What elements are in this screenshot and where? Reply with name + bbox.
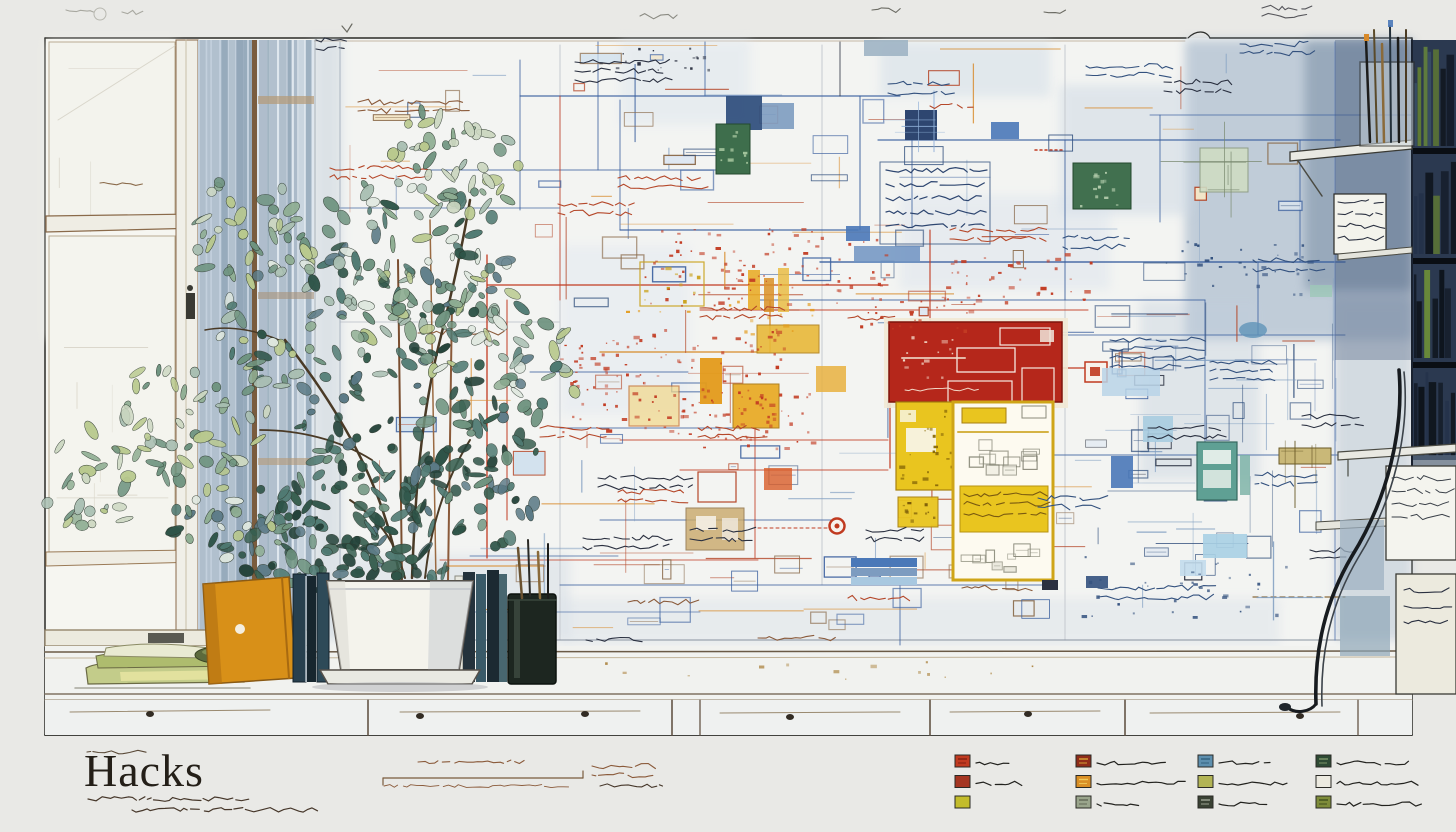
dot-mark	[690, 67, 693, 70]
dot-mark	[772, 243, 775, 246]
art-shape	[235, 624, 245, 634]
dot-mark	[680, 241, 683, 244]
dot-mark	[1240, 249, 1242, 251]
dot-mark	[1257, 285, 1261, 289]
dot-mark	[733, 250, 735, 252]
art-shape	[864, 40, 908, 56]
dot-mark	[943, 305, 945, 307]
dot-mark	[1229, 577, 1231, 579]
stripe	[1426, 372, 1429, 456]
dot-mark	[729, 160, 732, 162]
dot-mark	[910, 326, 913, 329]
dot-mark	[946, 286, 951, 289]
stripe	[1441, 171, 1449, 254]
dot-mark	[717, 234, 722, 237]
legend-swatch	[1076, 796, 1091, 808]
art-shape	[312, 682, 488, 692]
dot-mark	[638, 48, 641, 51]
dot-mark	[1070, 279, 1072, 280]
dot-mark	[998, 272, 1002, 274]
book-spine	[293, 574, 306, 682]
dot-mark	[1089, 581, 1092, 584]
dot-mark	[743, 265, 746, 266]
dot-mark	[602, 353, 605, 356]
dot-mark	[801, 412, 803, 414]
schematic-box	[664, 155, 695, 164]
dot-mark	[1205, 259, 1210, 262]
stripe	[1445, 288, 1451, 358]
dot-mark	[1084, 290, 1091, 294]
dot-mark	[1262, 273, 1268, 276]
dot-mark	[924, 360, 930, 363]
art-shape	[45, 700, 1412, 735]
art-shape	[757, 325, 819, 353]
dot-mark	[595, 363, 601, 366]
dot-mark	[623, 53, 624, 54]
dot-mark	[1198, 574, 1201, 576]
dot-mark	[740, 439, 742, 441]
legend-swatch	[1076, 776, 1091, 788]
dot-mark	[1211, 257, 1214, 260]
dot-mark	[581, 403, 584, 406]
dot-mark	[872, 271, 875, 274]
dot-mark	[906, 511, 909, 514]
dot-mark	[644, 427, 646, 429]
dot-mark	[810, 309, 814, 311]
dot-mark	[991, 276, 995, 280]
dot-mark	[1184, 273, 1187, 274]
dot-mark	[580, 418, 582, 420]
dot-mark	[780, 284, 782, 285]
dot-mark	[1047, 260, 1050, 263]
leaf	[448, 138, 459, 147]
dot-mark	[783, 347, 786, 350]
dot-mark	[712, 337, 717, 340]
dot-mark	[776, 329, 778, 331]
dot-mark	[976, 299, 982, 303]
dot-mark	[712, 257, 717, 260]
dot-mark	[815, 245, 819, 247]
dot-mark	[788, 247, 791, 250]
dot-mark	[680, 254, 682, 256]
dot-mark	[721, 159, 723, 161]
dot-mark	[763, 275, 765, 277]
dot-mark	[616, 342, 619, 345]
dot-mark	[794, 396, 799, 399]
dot-mark	[1147, 586, 1148, 587]
dot-mark	[836, 302, 838, 304]
dot-mark	[1083, 300, 1085, 301]
dot-mark	[574, 360, 578, 362]
dot-mark	[1174, 600, 1177, 603]
dot-mark	[707, 69, 710, 72]
legend-swatch	[955, 755, 970, 767]
art-shape	[851, 577, 917, 585]
dot-mark	[709, 414, 711, 416]
dot-mark	[581, 352, 583, 354]
dot-mark	[1299, 293, 1302, 296]
dot-mark	[1130, 563, 1135, 566]
dot-mark	[703, 447, 706, 449]
dot-mark	[708, 292, 711, 294]
art-shape	[1279, 703, 1291, 711]
dot-mark	[739, 260, 742, 262]
dot-mark	[683, 415, 689, 418]
dot-mark	[1277, 255, 1278, 256]
dot-mark	[921, 301, 923, 303]
dot-mark	[718, 429, 720, 431]
leaf	[367, 207, 372, 215]
dot-mark	[683, 300, 687, 304]
drawer-handle	[581, 711, 589, 717]
art-shape	[700, 358, 722, 404]
dot-mark	[923, 477, 929, 480]
dot-mark	[807, 431, 809, 433]
dot-mark	[652, 334, 656, 338]
dot-mark	[944, 297, 946, 299]
dot-mark	[860, 325, 863, 328]
art-shape	[1180, 560, 1206, 576]
dot-mark	[693, 57, 696, 59]
dot-mark	[1093, 188, 1097, 190]
dot-mark	[1082, 615, 1088, 618]
dot-mark	[751, 333, 755, 335]
dot-mark	[729, 304, 731, 306]
dot-mark	[691, 359, 694, 362]
legend-swatch	[1198, 776, 1213, 788]
dot-mark	[633, 392, 639, 395]
dot-mark	[792, 330, 794, 332]
dot-mark	[935, 484, 938, 486]
art-shape	[258, 96, 314, 104]
dot-mark	[635, 416, 640, 419]
dot-mark	[1094, 173, 1097, 176]
dot-mark	[789, 422, 793, 426]
legend-swatch	[1198, 755, 1213, 767]
stripe	[1433, 299, 1439, 358]
dot-mark	[688, 675, 690, 676]
dot-mark	[639, 399, 642, 402]
dot-mark	[1009, 286, 1015, 289]
art-shape	[962, 408, 1006, 423]
dot-mark	[778, 293, 779, 294]
art-shape	[816, 366, 846, 392]
dot-mark	[952, 339, 954, 341]
dot-mark	[762, 407, 764, 409]
dot-mark	[742, 396, 743, 397]
dot-mark	[675, 241, 677, 243]
dot-mark	[650, 303, 652, 305]
window-latch	[186, 293, 195, 319]
dot-mark	[572, 416, 574, 418]
leaf	[214, 226, 222, 233]
dot-mark	[964, 330, 968, 334]
dot-mark	[901, 478, 905, 480]
stripe	[212, 40, 219, 644]
dot-mark	[718, 301, 724, 305]
stripe	[298, 40, 304, 644]
dot-mark	[1055, 267, 1058, 270]
dot-mark	[712, 401, 714, 403]
stripe	[1428, 52, 1431, 146]
art-shape	[258, 458, 314, 465]
dot-mark	[639, 339, 642, 342]
dot-mark	[779, 295, 781, 296]
dot-mark	[792, 287, 794, 289]
dot-mark	[954, 260, 957, 263]
dot-mark	[658, 410, 659, 411]
dot-mark	[768, 336, 773, 339]
dot-mark	[697, 276, 701, 280]
art-shape	[835, 524, 840, 529]
dot-mark	[776, 366, 780, 370]
dot-mark	[1294, 252, 1297, 255]
dot-mark	[776, 331, 782, 334]
dot-mark	[654, 395, 657, 398]
dot-mark	[607, 409, 608, 410]
dot-mark	[748, 284, 749, 285]
dot-mark	[636, 375, 640, 377]
schematic-box	[513, 451, 545, 475]
leaf	[465, 206, 476, 220]
dot-mark	[1245, 274, 1247, 276]
dot-mark	[739, 408, 740, 409]
dot-mark	[1085, 556, 1087, 558]
art-shape	[629, 386, 679, 426]
dot-mark	[777, 334, 780, 337]
dot-mark	[849, 277, 851, 279]
dot-mark	[946, 458, 949, 460]
dot-mark	[711, 400, 713, 402]
dot-mark	[1297, 273, 1300, 276]
dot-mark	[1055, 258, 1061, 261]
dot-mark	[579, 347, 581, 349]
dot-mark	[944, 410, 947, 413]
dot-mark	[745, 375, 748, 378]
dot-mark	[575, 372, 577, 373]
dot-mark	[564, 345, 566, 346]
art-shape	[148, 633, 184, 643]
art-shape	[1203, 450, 1231, 464]
dot-mark	[773, 251, 775, 253]
dot-mark	[871, 665, 877, 669]
dot-mark	[906, 352, 908, 354]
dot-mark	[714, 305, 716, 307]
dot-mark	[741, 423, 745, 425]
dot-mark	[1112, 188, 1115, 191]
art-shape	[1398, 38, 1399, 142]
dot-mark	[795, 271, 800, 274]
dot-mark	[848, 243, 851, 246]
dot-mark	[1257, 589, 1259, 591]
dot-mark	[1275, 614, 1278, 617]
dot-mark	[808, 303, 811, 306]
dot-mark	[807, 240, 810, 243]
dot-mark	[676, 250, 679, 253]
illustration-stage: Hacks	[0, 0, 1456, 832]
dot-mark	[665, 267, 671, 270]
dot-mark	[800, 273, 802, 275]
dot-mark	[691, 367, 693, 369]
dot-mark	[679, 275, 682, 278]
dot-mark	[622, 418, 627, 421]
dot-mark	[1010, 265, 1013, 268]
dot-mark	[687, 311, 691, 313]
dot-mark	[736, 278, 737, 279]
art-shape	[1111, 456, 1133, 488]
dot-mark	[748, 390, 750, 392]
dot-mark	[938, 352, 940, 354]
dot-mark	[845, 679, 846, 680]
dot-mark	[758, 373, 761, 376]
art-shape	[900, 410, 916, 422]
dot-mark	[911, 519, 914, 522]
dot-mark	[868, 312, 869, 313]
dot-mark	[899, 325, 901, 327]
dot-mark	[900, 301, 904, 303]
dot-mark	[1193, 583, 1198, 586]
dot-mark	[637, 62, 641, 66]
leaf	[358, 484, 370, 495]
dot-mark	[716, 247, 722, 250]
dot-mark	[1249, 574, 1251, 576]
dot-mark	[669, 255, 673, 257]
art-shape	[991, 122, 1019, 139]
dot-mark	[667, 289, 670, 290]
dot-mark	[1180, 583, 1183, 585]
dot-mark	[780, 314, 782, 316]
stripe	[1425, 173, 1433, 254]
dot-mark	[694, 229, 696, 230]
dot-mark	[774, 353, 776, 355]
leaf	[450, 253, 455, 261]
book-spine	[487, 570, 499, 682]
dot-mark	[581, 345, 583, 347]
dot-mark	[766, 421, 769, 424]
leaf	[192, 495, 201, 504]
dot-mark	[907, 502, 911, 504]
dot-mark	[1197, 245, 1199, 247]
dot-mark	[750, 438, 752, 440]
dot-mark	[787, 303, 792, 306]
dot-mark	[942, 297, 945, 298]
dot-mark	[812, 315, 814, 317]
leaf	[321, 484, 325, 491]
dot-mark	[1172, 611, 1174, 613]
dot-mark	[888, 322, 890, 324]
art-shape	[1412, 258, 1456, 264]
dot-mark	[765, 253, 770, 256]
dot-mark	[880, 285, 883, 287]
dot-mark	[664, 329, 667, 332]
dot-mark	[689, 433, 692, 435]
dot-mark	[625, 364, 628, 365]
drawer-handle	[786, 714, 794, 720]
dot-mark	[669, 430, 674, 433]
dot-mark	[774, 413, 777, 416]
dot-mark	[603, 367, 609, 371]
dot-mark	[766, 281, 767, 282]
dot-mark	[944, 416, 946, 418]
dot-mark	[1099, 579, 1101, 581]
dot-mark	[605, 384, 608, 387]
dot-mark	[883, 278, 885, 280]
art-shape	[898, 497, 938, 527]
stripe	[1424, 270, 1430, 358]
dot-mark	[652, 401, 654, 403]
dot-mark	[826, 284, 829, 286]
dot-mark	[925, 513, 927, 515]
dot-mark	[984, 257, 986, 258]
dot-mark	[885, 254, 889, 256]
dot-mark	[757, 348, 759, 350]
dot-mark	[784, 263, 787, 266]
dot-mark	[694, 412, 697, 414]
dot-mark	[834, 670, 840, 673]
dot-mark	[721, 269, 724, 272]
dot-mark	[626, 311, 630, 313]
dot-mark	[1293, 294, 1295, 296]
dot-mark	[655, 261, 658, 263]
leaf	[490, 541, 500, 551]
dot-mark	[1116, 204, 1119, 205]
dot-mark	[1187, 241, 1190, 244]
dot-mark	[773, 418, 776, 421]
dot-mark	[677, 233, 680, 235]
stripe	[1433, 196, 1440, 254]
drawer-handle	[1296, 713, 1304, 719]
dot-mark	[699, 402, 700, 403]
dot-mark	[886, 274, 890, 276]
dot-mark	[692, 404, 694, 406]
dot-mark	[721, 351, 724, 354]
art-shape	[1240, 455, 1250, 495]
leaf	[255, 545, 265, 556]
art-shape	[1042, 580, 1058, 590]
dot-mark	[759, 396, 762, 398]
dot-mark	[1191, 571, 1194, 573]
dot-mark	[743, 152, 747, 155]
art-shape	[1040, 330, 1054, 342]
dot-mark	[951, 263, 955, 265]
art-shape	[906, 428, 936, 452]
dot-mark	[784, 447, 790, 450]
dot-mark	[989, 279, 991, 281]
dot-mark	[1103, 180, 1106, 183]
dot-mark	[922, 363, 924, 365]
legend-swatch	[1316, 776, 1331, 788]
art-shape	[1200, 148, 1248, 192]
dot-mark	[974, 303, 976, 305]
dot-mark	[806, 396, 808, 398]
dot-mark	[863, 241, 864, 242]
dot-mark	[1095, 195, 1098, 198]
dot-mark	[732, 288, 736, 290]
dot-mark	[765, 399, 767, 401]
dot-mark	[738, 269, 742, 271]
dot-mark	[927, 673, 930, 676]
legend-swatch	[955, 796, 970, 808]
dot-mark	[912, 481, 917, 484]
dot-mark	[934, 446, 939, 449]
art-shape	[104, 644, 210, 658]
book-spine	[476, 574, 486, 682]
art-shape	[1239, 322, 1267, 338]
dot-mark	[924, 430, 925, 431]
dot-mark	[738, 391, 741, 394]
dot-mark	[728, 298, 730, 300]
dot-mark	[966, 283, 968, 285]
